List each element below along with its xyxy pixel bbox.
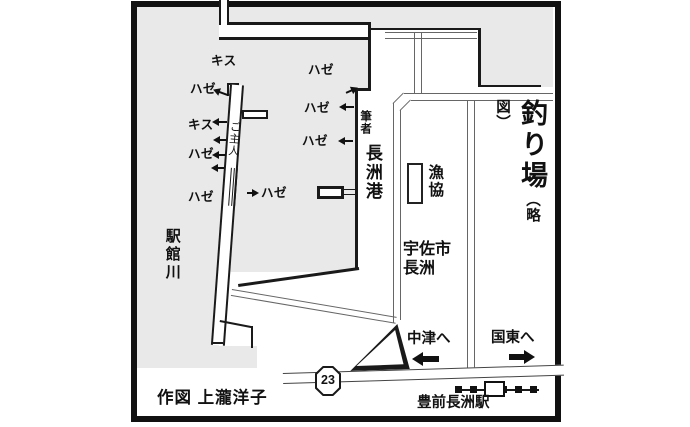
fish-label: キス <box>188 119 214 132</box>
road-c-left <box>414 32 415 93</box>
river-water <box>137 7 219 368</box>
coastline-corner-horizontal <box>481 85 541 88</box>
seawall-channel-gap <box>219 0 229 25</box>
road-top-lower <box>385 38 477 39</box>
river-label: 駅館川 <box>164 228 180 282</box>
jetty-husband-label: ご主人 <box>226 120 240 157</box>
jetty-hook-vertical <box>251 326 253 348</box>
boat-mooring-line <box>342 189 356 190</box>
road-d-upper <box>404 93 553 94</box>
credit-label: 作図 上瀧洋子 <box>157 390 268 407</box>
river-water-south <box>214 346 257 368</box>
city-label-line1: 宇佐市 <box>403 240 451 259</box>
east-direction-arrow <box>509 350 535 364</box>
road-f-left <box>467 101 468 371</box>
fish-label: ハゼ <box>308 64 334 77</box>
coastline-corner-vertical <box>478 28 481 87</box>
map-title: 釣り場（略図） <box>492 99 552 244</box>
port-label: 長洲港 <box>363 144 381 201</box>
fish-label: ハゼ <box>304 102 330 115</box>
to-nakatsu-label: 中津へ <box>407 332 451 347</box>
fish-label: ハゼ <box>190 83 216 96</box>
road-top-upper <box>385 32 477 33</box>
north-seawall-band <box>219 22 371 40</box>
fish-label: ハゼ <box>261 187 287 200</box>
sea-block-right <box>478 7 553 87</box>
road-c-right <box>421 32 422 93</box>
author-label: 筆者 <box>359 110 371 135</box>
east-quay-wall <box>355 91 358 268</box>
road-e-right <box>400 110 401 320</box>
road-e-left <box>393 103 394 323</box>
jetty-foot <box>212 342 223 344</box>
map-title-main: 釣り場 <box>517 99 547 192</box>
station-label: 豊前長洲駅 <box>417 396 490 411</box>
coop-label: 漁協 <box>426 164 442 199</box>
to-kunisaki-label: 国東へ <box>491 331 535 346</box>
fish-label: ハゼ <box>302 135 328 148</box>
road-f-right <box>474 101 475 369</box>
city-label-line2: 長洲 <box>403 259 451 278</box>
port-basin-water <box>219 30 371 272</box>
fish-label: ハゼ <box>188 148 214 161</box>
route-badge-number: 23 <box>315 366 341 396</box>
moored-boat <box>317 186 344 199</box>
city-label: 宇佐市 長洲 <box>403 240 451 278</box>
boat-mooring-line <box>342 194 356 195</box>
coastline-east <box>371 28 481 30</box>
fish-label: キス <box>211 55 237 68</box>
quay-wall-upper <box>368 22 371 91</box>
west-direction-arrow <box>412 352 439 366</box>
jetty-arm <box>242 110 268 119</box>
fish-label: ハゼ <box>188 191 214 204</box>
coop-building <box>407 163 423 204</box>
screenshot-root: { "title": {"main": "釣り場", "sub": "（略図）"… <box>0 0 690 427</box>
